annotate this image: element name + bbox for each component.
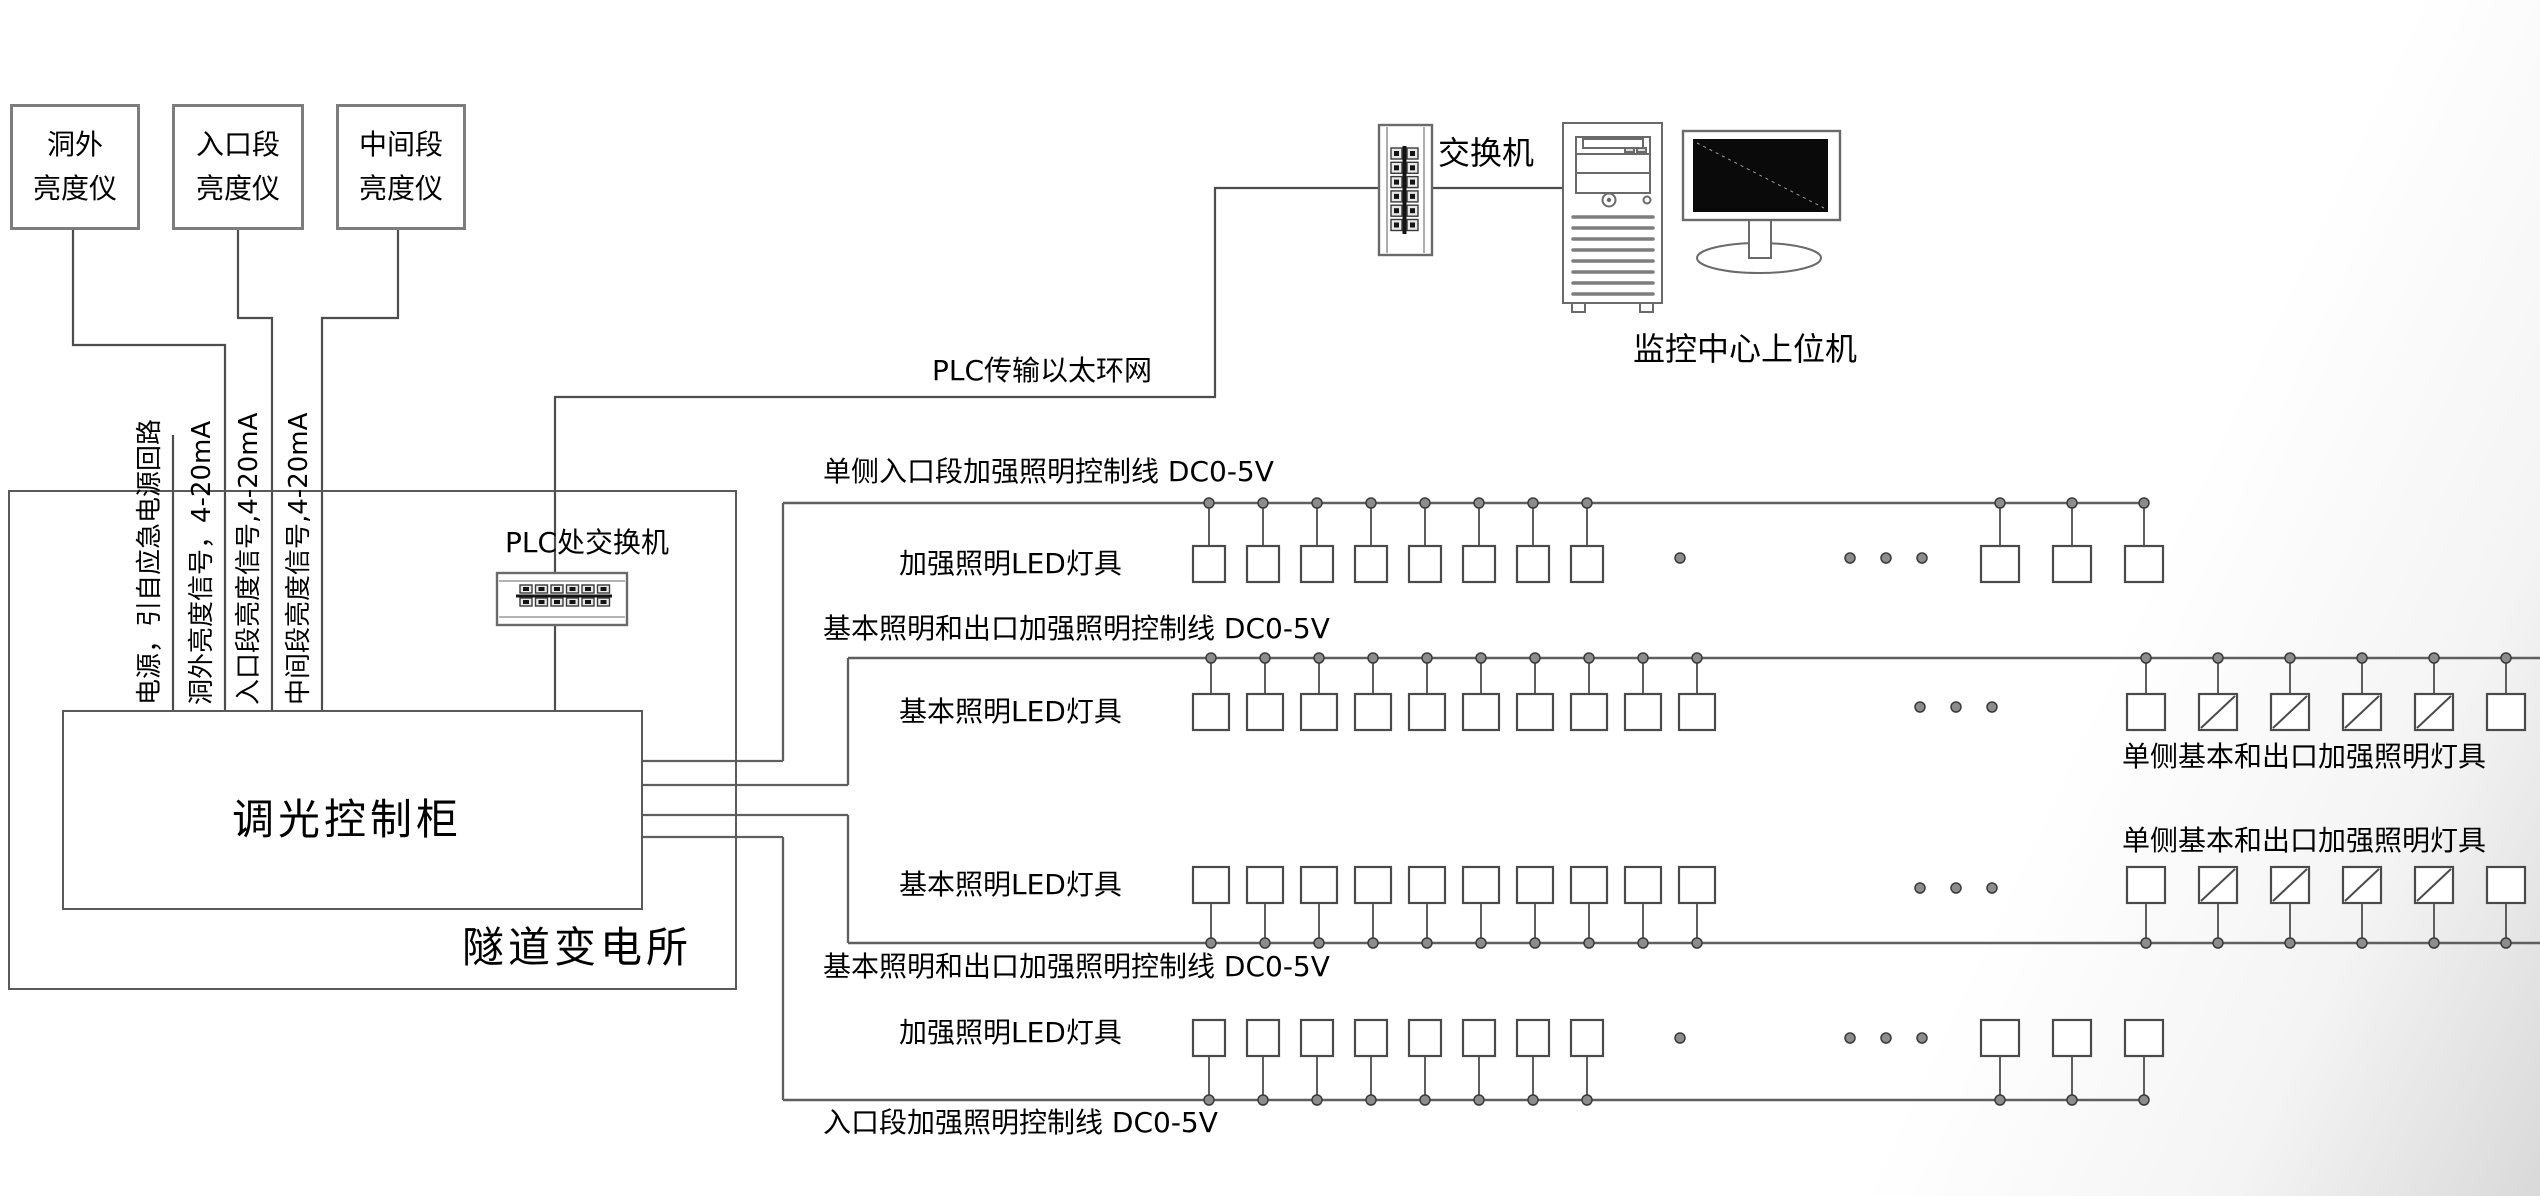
meter-label: 亮度仪 bbox=[196, 167, 280, 211]
lamp-box bbox=[1981, 1020, 2019, 1056]
lamp-box bbox=[1301, 867, 1337, 903]
lamp-box bbox=[1571, 546, 1603, 582]
junction-dot bbox=[2285, 938, 2295, 948]
junction-dot bbox=[2501, 653, 2511, 663]
junction-dot bbox=[1206, 653, 1216, 663]
junction-dot bbox=[1260, 938, 1270, 948]
switch-port-pin bbox=[1394, 180, 1399, 185]
ellipsis-dot bbox=[1951, 702, 1961, 712]
junction-dot bbox=[1692, 938, 1702, 948]
substation-label: 隧道变电所 bbox=[462, 924, 692, 972]
tower-foot bbox=[1640, 303, 1653, 312]
junction-dot bbox=[1474, 498, 1484, 508]
outside-luminance-signal-label: 洞外亮度信号，4-20mA bbox=[185, 421, 219, 705]
lamp-box bbox=[1301, 694, 1337, 730]
junction-dot bbox=[2429, 653, 2439, 663]
lamp-box bbox=[1409, 1020, 1441, 1056]
lamp-box bbox=[2487, 694, 2525, 730]
diagram-canvas: 洞外 亮度仪 入口段 亮度仪 中间段 亮度仪 电源，引自应急电源回路 洞外亮度信… bbox=[0, 0, 2540, 1196]
lamp-box bbox=[2053, 1020, 2091, 1056]
row3-right-lamp-label: 单侧基本和出口加强照明灯具 bbox=[2122, 824, 2486, 858]
lamp-box bbox=[2125, 1020, 2163, 1056]
meter-label: 洞外 bbox=[47, 123, 103, 167]
junction-dot bbox=[1638, 653, 1648, 663]
junction-dot bbox=[1312, 1095, 1322, 1105]
junction-dot bbox=[1995, 1095, 2005, 1105]
lamp-box bbox=[1517, 867, 1553, 903]
switch-port-pin bbox=[1394, 194, 1399, 199]
ring-switch-label: 交换机 bbox=[1438, 136, 1534, 170]
lamp-box bbox=[2053, 546, 2091, 582]
meter-box-outside: 洞外 亮度仪 bbox=[10, 104, 140, 230]
row2-lamp-label: 基本照明LED灯具 bbox=[899, 695, 1122, 729]
junction-dot bbox=[1366, 1095, 1376, 1105]
lighting-rows-layer bbox=[643, 498, 2540, 1105]
lamp-box bbox=[1247, 546, 1279, 582]
switch-port-pin bbox=[1410, 165, 1415, 170]
lamp-box bbox=[1981, 546, 2019, 582]
lamp-box bbox=[1625, 867, 1661, 903]
lamp-box bbox=[1463, 1020, 1495, 1056]
switch-port-pin bbox=[1410, 208, 1415, 213]
junction-dot bbox=[1995, 498, 2005, 508]
junction-dot bbox=[2213, 653, 2223, 663]
meter-label: 亮度仪 bbox=[359, 167, 443, 211]
lamp-box bbox=[1463, 867, 1499, 903]
lamp-box bbox=[1247, 1020, 1279, 1056]
lamp-box bbox=[1571, 1020, 1603, 1056]
junction-dot bbox=[1206, 938, 1216, 948]
power-button-center bbox=[1607, 198, 1611, 202]
junction-dot bbox=[1312, 498, 1322, 508]
junction-dot bbox=[1530, 938, 1540, 948]
row3-control-line-label: 基本照明和出口加强照明控制线 DC0-5V bbox=[823, 950, 1330, 984]
lamp-box bbox=[1247, 867, 1283, 903]
row1-control-line-label: 单侧入口段加强照明控制线 DC0-5V bbox=[823, 455, 1274, 489]
switch-port-pin bbox=[1410, 194, 1415, 199]
lamp-box bbox=[1301, 546, 1333, 582]
junction-dot bbox=[1422, 653, 1432, 663]
switch-port-pin bbox=[1394, 223, 1399, 228]
ellipsis-dot bbox=[1881, 553, 1891, 563]
ellipsis-dot bbox=[1951, 883, 1961, 893]
switch-port-pin bbox=[1394, 208, 1399, 213]
junction-dot bbox=[1530, 653, 1540, 663]
host-monitor-icon bbox=[1683, 131, 1840, 273]
junction-dot bbox=[2139, 1095, 2149, 1105]
ellipsis-dot bbox=[1917, 553, 1927, 563]
junction-dot bbox=[2213, 938, 2223, 948]
lamp-box bbox=[1301, 1020, 1333, 1056]
lamp-box bbox=[1625, 694, 1661, 730]
ellipsis-dot bbox=[1987, 883, 1997, 893]
junction-dot bbox=[1314, 653, 1324, 663]
lamp-box bbox=[1679, 694, 1715, 730]
junction-dot bbox=[1204, 1095, 1214, 1105]
junction-dot bbox=[1528, 1095, 1538, 1105]
meter-label: 入口段 bbox=[196, 123, 280, 167]
row3-lamp-label: 基本照明LED灯具 bbox=[899, 868, 1122, 902]
lamp-box bbox=[1409, 694, 1445, 730]
junction-dot bbox=[2141, 653, 2151, 663]
junction-dot bbox=[1476, 938, 1486, 948]
switch-port-pin bbox=[1410, 223, 1415, 228]
entrance-luminance-signal-label: 入口段亮度信号,4-20mA bbox=[232, 413, 266, 705]
junction-dot bbox=[1584, 938, 1594, 948]
ring-switch-icon bbox=[1379, 125, 1432, 255]
ellipsis-dot bbox=[1675, 1033, 1685, 1043]
lamp-box bbox=[1193, 694, 1229, 730]
switch-port-pin bbox=[1394, 151, 1399, 156]
meter-box-middle: 中间段 亮度仪 bbox=[336, 104, 466, 230]
lamp-box bbox=[2127, 867, 2165, 903]
junction-dot bbox=[1692, 653, 1702, 663]
switch-port-pin bbox=[1410, 180, 1415, 185]
ellipsis-dot bbox=[1917, 1033, 1927, 1043]
junction-dot bbox=[2067, 1095, 2077, 1105]
lamp-box bbox=[2127, 694, 2165, 730]
junction-dot bbox=[1260, 653, 1270, 663]
dimming-cabinet-label: 调光控制柜 bbox=[232, 796, 462, 844]
switch-port-pin bbox=[1394, 165, 1399, 170]
lamp-box bbox=[1517, 1020, 1549, 1056]
monitor-stand bbox=[1749, 220, 1771, 258]
junction-dot bbox=[1582, 498, 1592, 508]
ellipsis-dot bbox=[1915, 702, 1925, 712]
lamp-box bbox=[1355, 546, 1387, 582]
drive-button bbox=[1625, 148, 1634, 152]
lamp-box bbox=[1571, 694, 1607, 730]
junction-dot bbox=[1368, 938, 1378, 948]
ellipsis-dot bbox=[1987, 702, 1997, 712]
junction-dot bbox=[1258, 1095, 1268, 1105]
meter-box-entrance: 入口段 亮度仪 bbox=[172, 104, 304, 230]
lamp-box bbox=[1517, 694, 1553, 730]
junction-dot bbox=[2357, 938, 2367, 948]
plc-switch-label: PLC处交换机 bbox=[505, 526, 669, 560]
row4-control-line-label: 入口段加强照明控制线 DC0-5V bbox=[823, 1106, 1218, 1140]
lamp-box bbox=[1517, 546, 1549, 582]
drive-button bbox=[1637, 148, 1646, 152]
lamp-box bbox=[1247, 694, 1283, 730]
power-source-label: 电源，引自应急电源回路 bbox=[133, 419, 167, 705]
junction-dot bbox=[1420, 1095, 1430, 1105]
junction-dot bbox=[2501, 938, 2511, 948]
host-label: 监控中心上位机 bbox=[1633, 332, 1857, 366]
ellipsis-dot bbox=[1915, 883, 1925, 893]
lamp-box bbox=[1355, 694, 1391, 730]
lamp-box bbox=[1463, 546, 1495, 582]
row2-right-lamp-label: 单侧基本和出口加强照明灯具 bbox=[2122, 740, 2486, 774]
junction-dot bbox=[1258, 498, 1268, 508]
junction-dot bbox=[2139, 498, 2149, 508]
tower-foot bbox=[1572, 303, 1585, 312]
junction-dot bbox=[1528, 498, 1538, 508]
ellipsis-dot bbox=[1845, 1033, 1855, 1043]
junction-dot bbox=[2285, 653, 2295, 663]
junction-dot bbox=[1476, 653, 1486, 663]
junction-dot bbox=[1584, 653, 1594, 663]
lamp-box bbox=[1409, 546, 1441, 582]
lamp-box bbox=[1193, 546, 1225, 582]
lamp-box bbox=[2125, 546, 2163, 582]
junction-dot bbox=[2429, 938, 2439, 948]
lamp-box bbox=[1193, 1020, 1225, 1056]
middle-luminance-signal-label: 中间段亮度信号,4-20mA bbox=[282, 413, 316, 705]
meter-label: 中间段 bbox=[359, 123, 443, 167]
ellipsis-dot bbox=[1845, 553, 1855, 563]
lamp-box bbox=[1409, 867, 1445, 903]
junction-dot bbox=[1422, 938, 1432, 948]
junction-dot bbox=[1366, 498, 1376, 508]
row2-control-line-label: 基本照明和出口加强照明控制线 DC0-5V bbox=[823, 612, 1330, 646]
lamp-box bbox=[1679, 867, 1715, 903]
junction-dot bbox=[1314, 938, 1324, 948]
junction-dot bbox=[1204, 498, 1214, 508]
meter-label: 亮度仪 bbox=[33, 167, 117, 211]
junction-dot bbox=[1582, 1095, 1592, 1105]
junction-dot bbox=[1638, 938, 1648, 948]
lamp-box bbox=[1355, 867, 1391, 903]
lamp-box bbox=[1193, 867, 1229, 903]
host-tower-icon bbox=[1563, 123, 1662, 312]
optical-drive-slot bbox=[1583, 139, 1643, 148]
junction-dot bbox=[1420, 498, 1430, 508]
junction-dot bbox=[2357, 653, 2367, 663]
ellipsis-dot bbox=[1675, 553, 1685, 563]
reset-button bbox=[1644, 197, 1651, 204]
lamp-box bbox=[2487, 867, 2525, 903]
lamp-box bbox=[1463, 694, 1499, 730]
junction-dot bbox=[2141, 938, 2151, 948]
junction-dot bbox=[1474, 1095, 1484, 1105]
ellipsis-dot bbox=[1881, 1033, 1891, 1043]
row4-lamp-label: 加强照明LED灯具 bbox=[899, 1016, 1122, 1050]
lamp-box bbox=[1571, 867, 1607, 903]
row1-lamp-label: 加强照明LED灯具 bbox=[899, 547, 1122, 581]
junction-dot bbox=[2067, 498, 2077, 508]
ethernet-label: PLC传输以太环网 bbox=[932, 354, 1152, 388]
switch-port-pin bbox=[1410, 151, 1415, 156]
junction-dot bbox=[1368, 653, 1378, 663]
lamp-box bbox=[1355, 1020, 1387, 1056]
